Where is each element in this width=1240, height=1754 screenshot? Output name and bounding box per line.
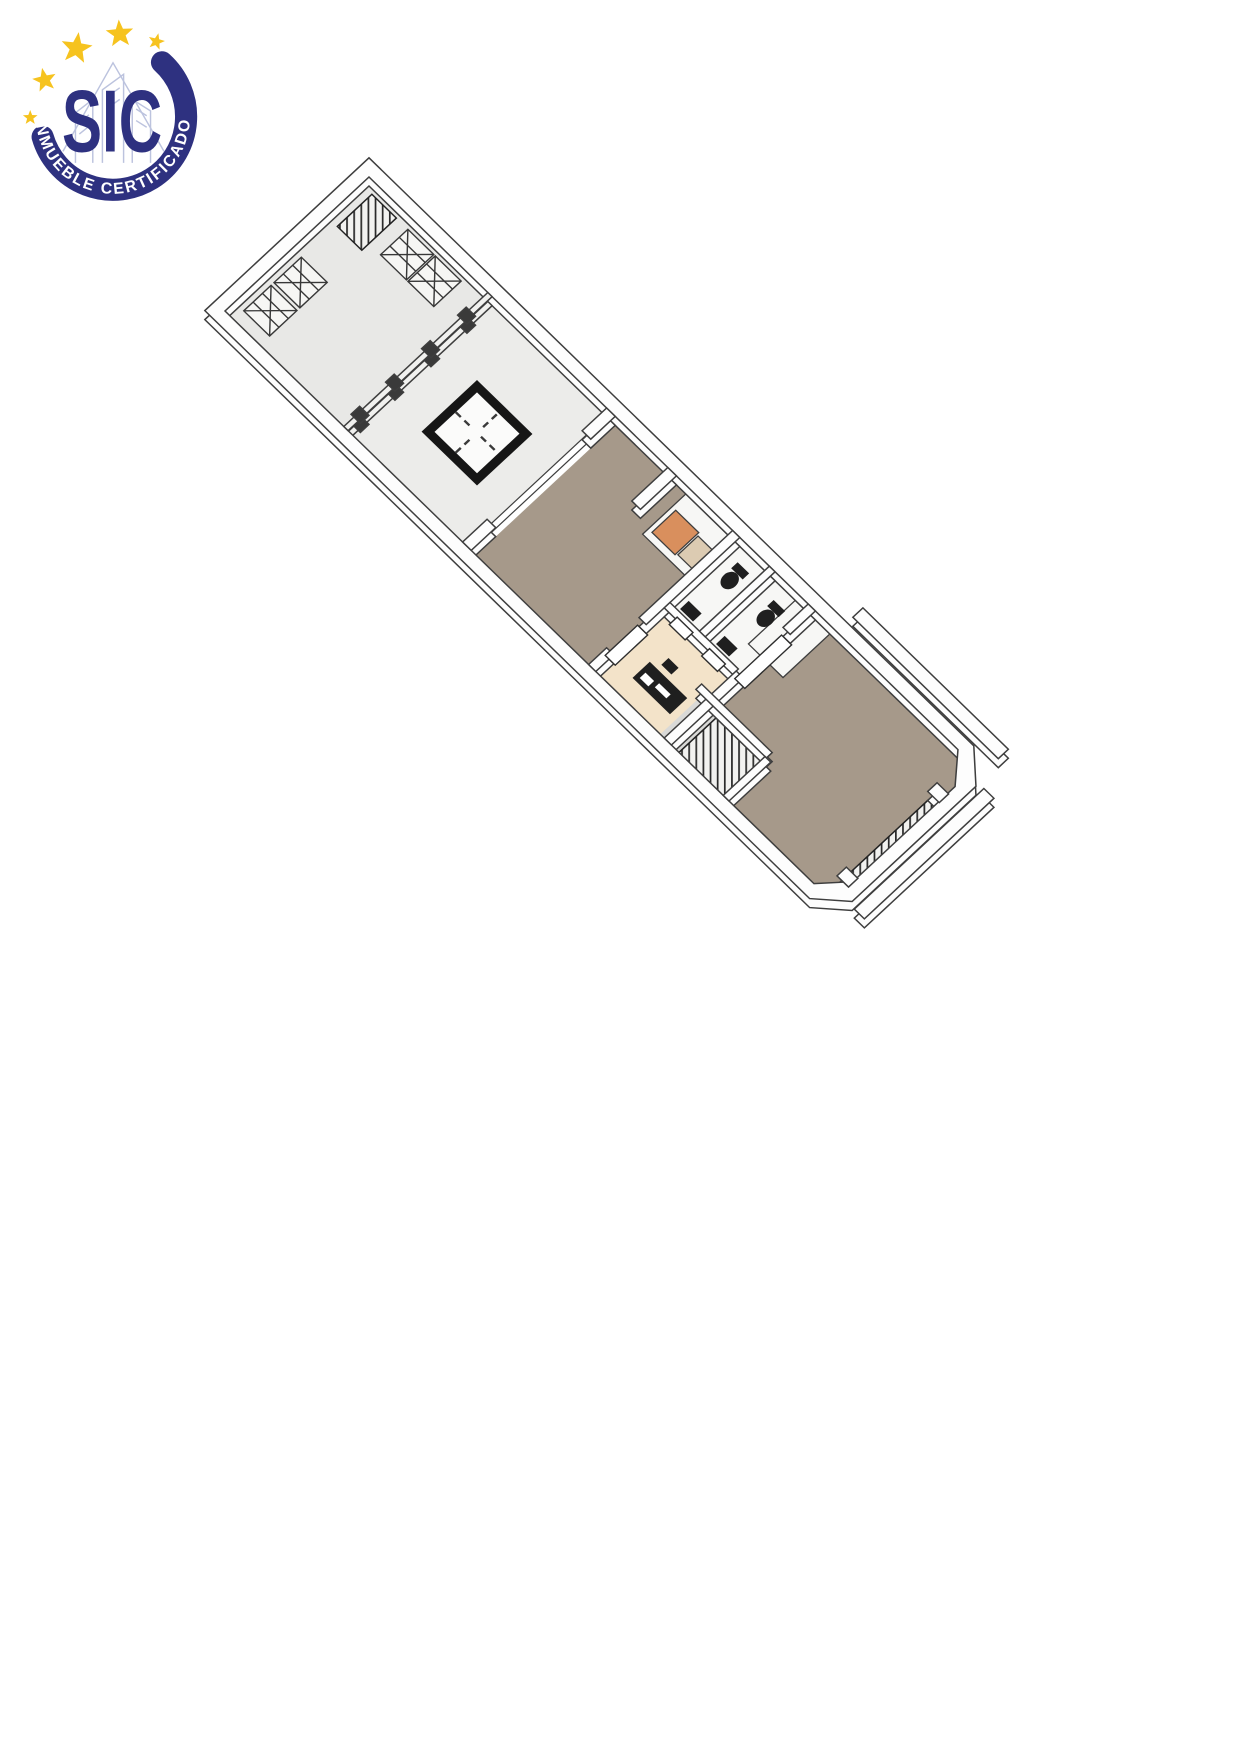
floor-plan-3d bbox=[0, 0, 1240, 1754]
page-root: { "page": { "background": "#ffffff" }, "… bbox=[0, 0, 1240, 1754]
floor-slabs bbox=[225, 186, 976, 910]
